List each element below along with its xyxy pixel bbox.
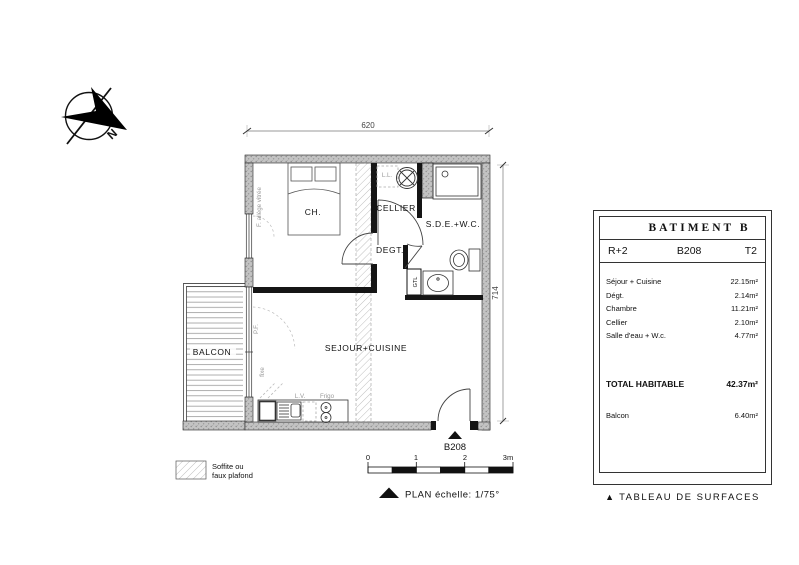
entrance-marker: B208 <box>444 431 466 453</box>
balcony: BALCON <box>183 283 245 430</box>
scale-tick-0: 0 <box>366 453 370 462</box>
table-row: Séjour + Cuisine 22.15m² <box>606 275 758 289</box>
scale-tick-2: 2 <box>463 453 467 462</box>
unit-type: T2 <box>745 240 757 262</box>
scale-tick-3: 3m <box>503 453 513 462</box>
kitchen-counter <box>258 383 348 423</box>
table-row: Chambre 11.21m² <box>606 302 758 316</box>
washing-machine-zone: L.L. <box>377 166 418 189</box>
surface-table-inner: BATIMENT B R+2 B208 T2 Séjour + Cuisine … <box>599 216 766 473</box>
plan-caption-text: PLAN échelle: 1/75° <box>405 490 500 501</box>
north-label: N <box>104 126 120 142</box>
gtl-label: GTL <box>413 277 419 288</box>
balcony-door-window <box>245 287 295 397</box>
frigo-label: Frigo <box>320 393 335 400</box>
table-row: Dégt. 2.14m² <box>606 289 758 303</box>
toilet <box>450 249 480 271</box>
table-caption: ▲TABLEAU DE SURFACES <box>593 492 772 503</box>
dimension-right-value: 714 <box>491 286 500 300</box>
table-caption-text: TABLEAU DE SURFACES <box>619 492 760 503</box>
total-row: TOTAL HABITABLE 42.37m² <box>606 379 758 389</box>
entrance-triangle-icon <box>448 431 462 439</box>
dimension-top-value: 620 <box>361 121 375 130</box>
balcony-row: Balcon 6.40m² <box>606 411 758 420</box>
shower <box>433 164 481 199</box>
table-row: Salle d'eau + W.c. 4.77m² <box>606 329 758 343</box>
lave-linge-label: L.L. <box>382 172 393 179</box>
bed <box>288 163 340 235</box>
scale-tick-1: 1 <box>414 453 418 462</box>
legend-soffit: Soffite ou faux plafond <box>176 461 253 480</box>
entrance-unit-label: B208 <box>444 442 466 453</box>
lave-vaisselle-label: L.V. <box>295 393 306 400</box>
table-row: Cellier 2.10m² <box>606 316 758 330</box>
table-caption-triangle-icon: ▲ <box>605 492 614 502</box>
unit-info-row: R+2 B208 T2 <box>600 240 765 263</box>
unit-number: B208 <box>677 240 702 262</box>
entrance-door <box>438 389 470 421</box>
floor-label: R+2 <box>608 240 628 262</box>
balcony-label: BALCON <box>193 347 232 357</box>
chambre-window-label: F. allège vitrée <box>256 187 263 227</box>
sejour-cuisine-label: SEJOUR+CUISINE <box>325 343 407 353</box>
cellier-label: CELLIER <box>376 203 416 213</box>
washbasin <box>423 271 453 295</box>
sde-wc-label: S.D.E.+W.C. <box>426 219 481 229</box>
plan-caption: PLAN échelle: 1/75° <box>379 488 500 501</box>
water-heater-icon <box>397 168 418 189</box>
duct-column <box>422 163 433 198</box>
surface-table: BATIMENT B R+2 B208 T2 Séjour + Cuisine … <box>593 210 772 485</box>
plan-caption-triangle-icon <box>379 488 399 499</box>
porte-fenetre-label: P.F. <box>253 324 260 334</box>
legend-line1: Soffite ou <box>212 462 244 471</box>
floorplan-page: N BALCON <box>0 0 799 565</box>
scale-bar <box>368 462 513 473</box>
north-compass-icon: N <box>61 87 127 144</box>
legend-line2: faux plafond <box>212 471 253 480</box>
gtl-box: GTL <box>407 269 421 295</box>
surface-rows: Séjour + Cuisine 22.15m² Dégt. 2.14m² Ch… <box>600 263 765 420</box>
fixe-label: fixe <box>259 367 266 377</box>
building-title: BATIMENT B <box>600 217 765 240</box>
chambre-label: CH. <box>305 207 321 217</box>
degagement-label: DEGT. <box>376 245 404 255</box>
